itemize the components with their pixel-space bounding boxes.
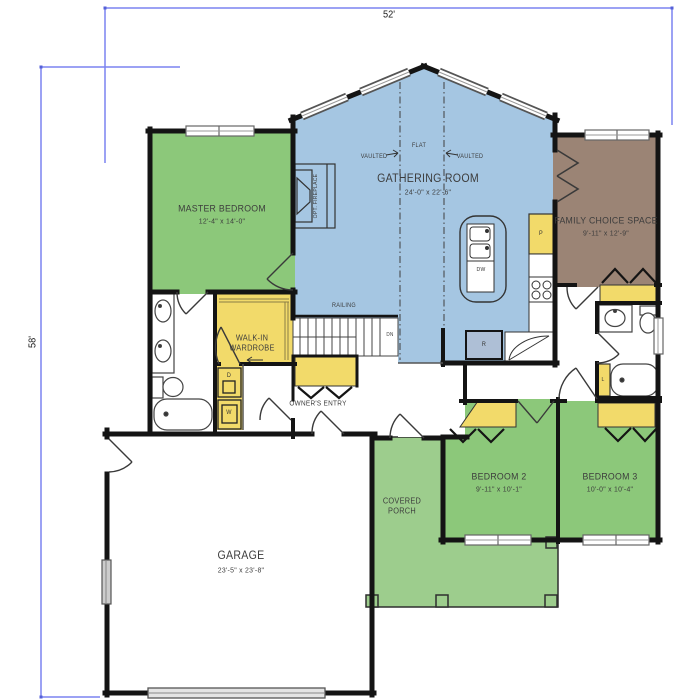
bedroom3-label: BEDROOM 3 xyxy=(583,472,638,483)
master-bath xyxy=(152,293,212,430)
porch-post xyxy=(436,595,448,607)
window-garage xyxy=(102,560,111,604)
window-bedroom3 xyxy=(583,535,649,545)
bifold-stair-closet xyxy=(298,387,352,398)
gathering-room-label: GATHERING ROOM xyxy=(377,173,479,185)
dishwasher xyxy=(467,261,494,292)
owners-entry-label: OWNER'S ENTRY xyxy=(289,401,346,408)
dishwasher-label: DW xyxy=(477,267,486,273)
width-dimension-label: 52' xyxy=(383,10,395,21)
bedroom3-size: 10'-0" x 10'-4" xyxy=(587,485,634,494)
walkin-wardrobe-label: WALK-IN WARDROBE xyxy=(223,333,282,352)
fireplace-label: OPT. FIREPLACE xyxy=(313,174,319,219)
porch-post xyxy=(545,595,557,607)
family-closet xyxy=(600,285,656,303)
family-choice-label: FAMILY CHOICE SPACE xyxy=(554,216,657,227)
door-hall-bath xyxy=(597,332,619,363)
garage-label: GARAGE xyxy=(218,550,265,562)
door-garage-side xyxy=(109,439,132,472)
stair-closet-floor xyxy=(295,357,357,386)
dryer-label: D xyxy=(227,373,231,379)
sink xyxy=(155,300,171,322)
door-owners-entry-garage xyxy=(312,411,344,434)
flat-ceiling-label: FLAT xyxy=(412,143,426,149)
covered-porch-label: COVERED PORCH xyxy=(375,496,428,515)
window-bedroom2 xyxy=(465,535,531,545)
window-family xyxy=(585,130,649,140)
toilet-bowl xyxy=(163,378,183,397)
pantry-label: P xyxy=(539,231,543,237)
height-dimension-label: 58' xyxy=(28,336,39,348)
bedroom2-label: BEDROOM 2 xyxy=(472,472,527,483)
vaulted-right-label: VAULTED xyxy=(457,154,484,160)
window-master xyxy=(186,126,254,136)
island-sink xyxy=(467,224,494,261)
linen-label: L xyxy=(601,377,604,383)
railing-label: RAILING xyxy=(332,303,356,309)
washer-label: W xyxy=(226,410,231,416)
sink xyxy=(155,340,171,362)
bathtub xyxy=(154,399,212,430)
floor-plan-drawing xyxy=(0,0,700,700)
family-choice-size: 9'-11" x 12'-9" xyxy=(583,229,629,238)
door-bedroom3 xyxy=(559,368,597,399)
door-family xyxy=(567,287,598,309)
door-hall-entry xyxy=(260,398,291,420)
garage-door xyxy=(148,688,325,698)
master-bedroom-label: MASTER BEDROOM xyxy=(178,204,266,215)
family-choice-floor xyxy=(553,133,660,287)
window-bath2 xyxy=(654,318,663,354)
walkin-wardrobe-floor xyxy=(215,292,293,364)
hall-floor xyxy=(398,363,465,437)
door-master-bath xyxy=(177,292,208,314)
refrigerator-label: R xyxy=(482,342,486,348)
master-bedroom-size: 12'-4" x 14'-0" xyxy=(199,217,246,226)
corner-counter xyxy=(505,332,553,362)
gathering-room-size: 24'-0" x 22'-6" xyxy=(405,188,452,197)
stairs-down-label: DN xyxy=(386,332,393,338)
staircase xyxy=(293,318,398,356)
toilet-tank xyxy=(152,377,163,398)
floor-plan-page: 52' 58' MASTER BEDROOM 12'-4" x 14'-0" G… xyxy=(0,0,700,700)
garage-size: 23'-5" x 23'-8" xyxy=(218,566,265,575)
bedroom2-size: 9'-11" x 10'-1" xyxy=(476,485,522,494)
bathtub xyxy=(611,364,658,396)
vaulted-left-label: VAULTED xyxy=(361,154,388,160)
bedroom3-closet xyxy=(598,403,655,427)
